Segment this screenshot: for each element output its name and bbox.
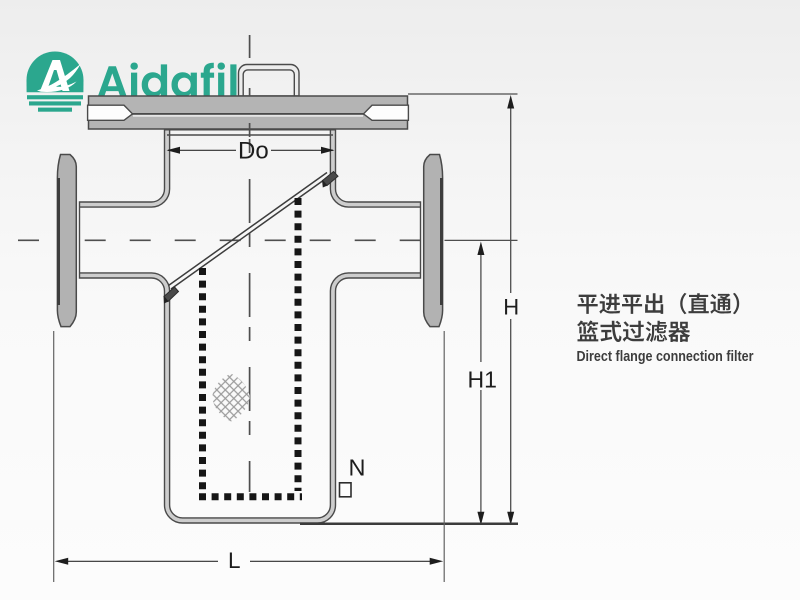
svg-text:L: L xyxy=(228,548,241,573)
svg-text:H1: H1 xyxy=(468,367,497,393)
svg-text:Direct flange connection filte: Direct flange connection filter xyxy=(577,348,754,365)
svg-text:Do: Do xyxy=(238,138,269,165)
svg-text:H: H xyxy=(503,295,519,320)
svg-text:N: N xyxy=(349,455,366,481)
